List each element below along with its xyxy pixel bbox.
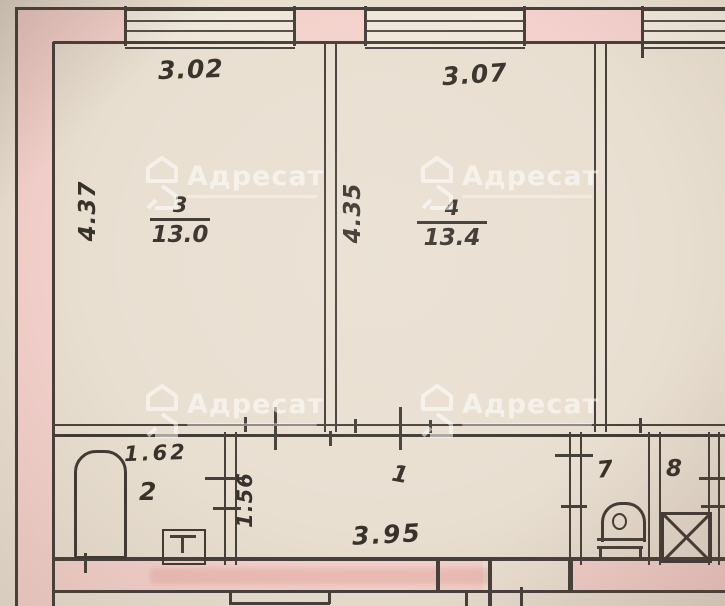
window-pane-line — [125, 20, 295, 22]
watermark-brand: Адресат — [462, 391, 599, 418]
fraction-bar — [150, 218, 210, 221]
door-tick — [244, 417, 247, 432]
door-tick — [329, 431, 332, 446]
room-7-number: 7 — [596, 456, 615, 483]
door-tick — [555, 454, 593, 457]
dim-hall-width: 3.95 — [351, 518, 422, 551]
window-edge-tick — [523, 6, 526, 46]
door-tick — [354, 419, 357, 433]
door-tick — [399, 407, 402, 450]
window-pane-line — [643, 30, 725, 32]
door-tick — [274, 407, 277, 450]
entrance-jamb — [568, 557, 573, 593]
wall-right-of-room-4 — [594, 43, 607, 432]
fraction-bar — [417, 221, 487, 224]
stair-line — [520, 587, 523, 606]
window-edge-tick — [364, 6, 367, 46]
door-tick — [429, 420, 432, 433]
sink-icon — [181, 535, 184, 553]
floor-plan: 3.02 3.07 4.37 4.35 3 13.0 4 13.4 1.62 2… — [0, 0, 725, 606]
toilet-icon — [612, 513, 627, 530]
door-tick — [701, 505, 725, 508]
wall-rooms-7-8 — [648, 432, 661, 565]
watermark-brand: Адресат — [187, 391, 324, 418]
toilet-icon — [599, 548, 602, 560]
window-edge-tick — [124, 6, 127, 46]
dim-mid-height: 4.35 — [340, 163, 366, 263]
room-3-number: 3 — [140, 193, 220, 217]
toilet-icon — [597, 546, 643, 549]
room-4-label: 4 13.4 — [410, 196, 494, 251]
door-tick — [561, 505, 587, 508]
room-1-number: 1 — [390, 461, 411, 490]
stair-line — [465, 592, 468, 606]
entrance-jamb — [488, 557, 492, 606]
window-pane-line — [125, 30, 295, 32]
window-pane-line — [643, 20, 725, 22]
window-pane-line — [365, 30, 525, 32]
landing-step — [229, 602, 330, 605]
outer-wall-top — [15, 7, 725, 10]
room-8-number: 8 — [666, 456, 683, 482]
vent-box-icon — [661, 512, 712, 563]
bathtub-icon — [74, 450, 127, 559]
window-edge-tick — [641, 6, 644, 58]
dim-bath-width: 1.62 — [124, 440, 189, 466]
window-edge-tick — [293, 6, 296, 46]
entrance-opening — [483, 560, 571, 592]
watermark-brand: Адресат — [462, 163, 599, 190]
toilet-icon — [597, 538, 643, 541]
door-tick — [639, 418, 642, 433]
wall-horizontal-mid — [53, 424, 725, 437]
window-pane-line — [365, 20, 525, 22]
dim-top-left: 3.02 — [158, 54, 225, 85]
wall-bottom-inner — [53, 557, 725, 561]
watermark-brand: Адресат — [187, 163, 324, 190]
room-4-number: 4 — [410, 196, 494, 220]
room-2-number: 2 — [139, 477, 157, 506]
entrance-jamb — [436, 559, 440, 593]
room-3-label: 3 13.0 — [140, 193, 220, 248]
door-tick — [699, 477, 725, 480]
dim-left-height: 4.37 — [75, 161, 101, 261]
left-wall-fill — [18, 10, 53, 606]
landing-step — [229, 591, 232, 604]
room-4-area: 13.4 — [410, 225, 494, 251]
landing-step — [328, 591, 331, 604]
dim-top-right: 3.07 — [441, 58, 509, 92]
wall-hall-room7 — [569, 432, 582, 565]
dim-hall-height: 1.56 — [233, 458, 257, 542]
inner-wall-left — [52, 42, 55, 606]
inner-wall-top — [53, 41, 725, 44]
room-3-area: 13.0 — [140, 222, 220, 248]
outer-wall-left — [15, 7, 18, 606]
wall-rooms-3-4 — [324, 43, 337, 432]
toilet-icon — [639, 548, 642, 560]
wall-bottom-outer — [53, 590, 725, 593]
